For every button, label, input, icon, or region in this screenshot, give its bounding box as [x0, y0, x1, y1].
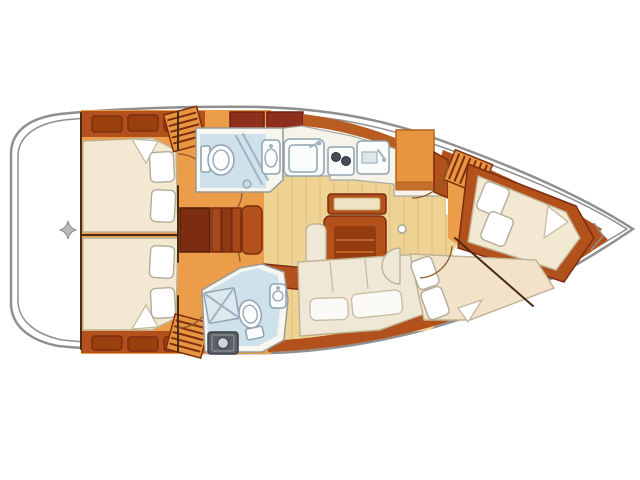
pillow [150, 287, 176, 318]
step-tread [232, 208, 241, 252]
step-tread [212, 208, 221, 252]
step-landing [242, 206, 262, 254]
floor-plan-page [0, 0, 640, 480]
locker-door [92, 116, 122, 132]
faucet [317, 141, 322, 146]
stern-deck [60, 221, 76, 239]
washbasin [270, 284, 286, 308]
fore-bench-cushion [334, 198, 380, 210]
galley-sink-unit [284, 139, 324, 176]
step-tread [222, 208, 231, 252]
washbasin [262, 140, 280, 174]
unit-basin [362, 152, 377, 163]
pillow [149, 245, 175, 278]
yacht-floor-plan [0, 0, 640, 480]
shower-grate [204, 288, 240, 324]
toilet [201, 145, 234, 175]
stove [328, 147, 354, 175]
pillow [150, 189, 176, 222]
shower-drain [243, 180, 251, 188]
locker-door [128, 337, 158, 351]
seat-cushion [310, 297, 349, 320]
faucet [382, 158, 386, 162]
appliance-box [208, 332, 238, 354]
pillow [149, 151, 175, 182]
burner [332, 153, 341, 162]
engine-box [180, 208, 210, 252]
door-knob [398, 225, 406, 233]
faucet [276, 286, 280, 290]
burner [342, 157, 351, 166]
chart-table-edge [396, 182, 434, 190]
heads-port [196, 128, 283, 192]
locker-door [128, 115, 158, 131]
locker-door [92, 336, 122, 350]
counter-unit [357, 141, 389, 174]
seat-cushion [351, 289, 403, 318]
faucet [269, 144, 273, 148]
companionway [180, 206, 262, 254]
bow-cabin-starboard [410, 254, 554, 322]
transom-star-marker [60, 221, 76, 239]
chart-table [396, 130, 434, 188]
